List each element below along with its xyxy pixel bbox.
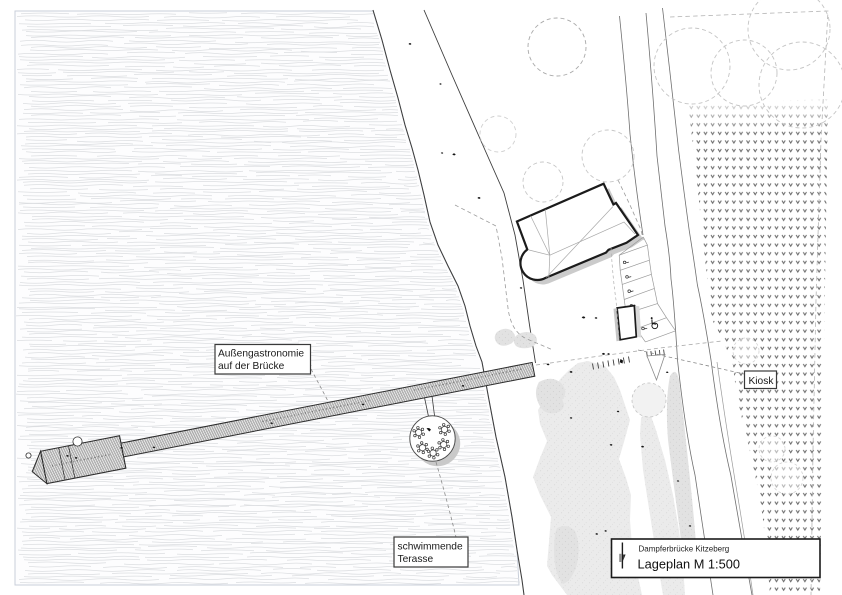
svg-text:Terasse: Terasse bbox=[398, 554, 434, 565]
svg-text:auf der Brücke: auf der Brücke bbox=[218, 361, 285, 372]
svg-text:Lageplan M 1:500: Lageplan M 1:500 bbox=[638, 557, 740, 572]
svg-text:schwimmende: schwimmende bbox=[398, 542, 463, 553]
svg-text:Dampferbrücke Kitzeberg: Dampferbrücke Kitzeberg bbox=[639, 545, 730, 554]
svg-text:Außengastronomie: Außengastronomie bbox=[218, 349, 304, 360]
svg-text:Kiosk: Kiosk bbox=[749, 376, 775, 387]
